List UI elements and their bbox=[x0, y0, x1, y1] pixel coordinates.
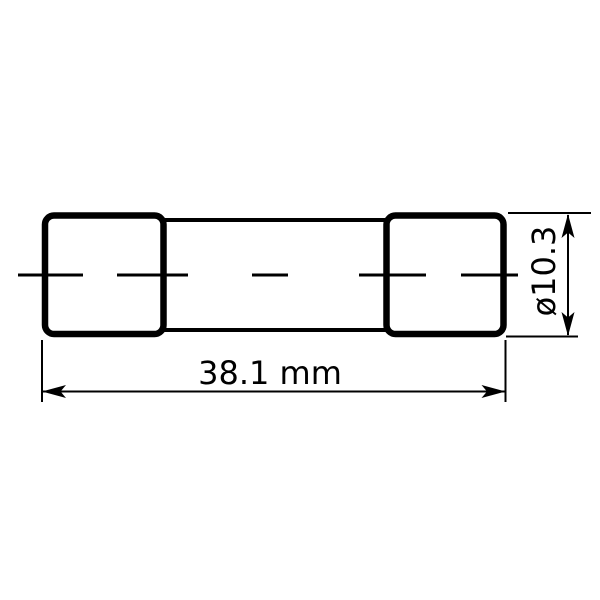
fuse-dimension-drawing bbox=[0, 0, 600, 600]
diameter-dimension-label: ø10.3 bbox=[525, 201, 563, 341]
length-dimension-label: 38.1 mm bbox=[120, 354, 420, 392]
drawing-canvas: 38.1 mm ø10.3 bbox=[0, 0, 600, 600]
